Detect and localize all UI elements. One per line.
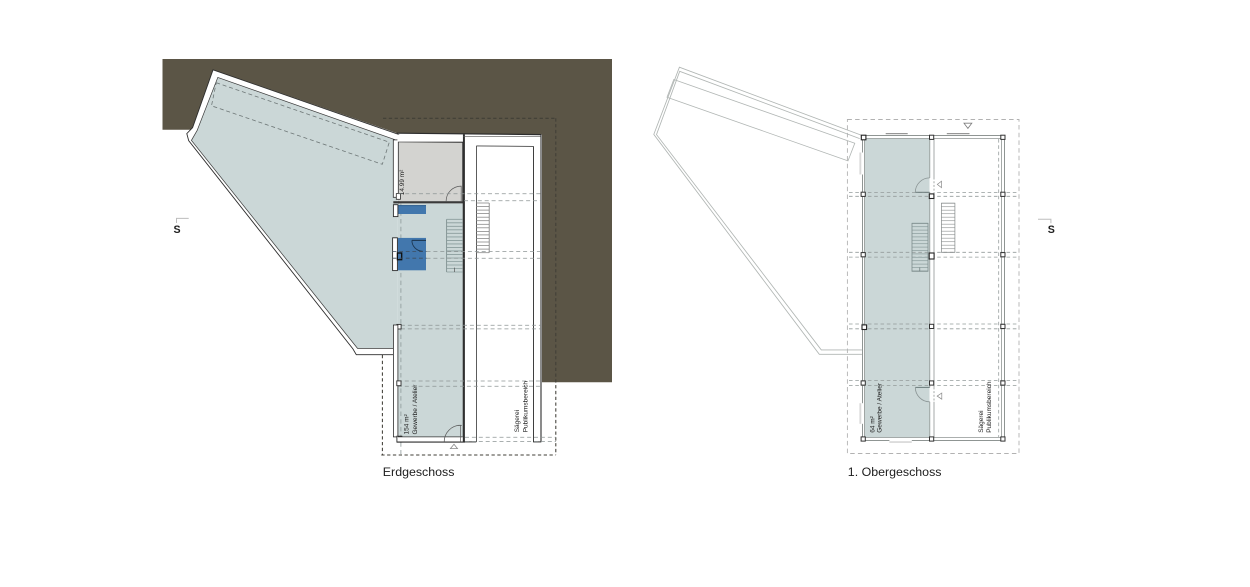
svg-text:Sägerei: Sägerei <box>978 410 985 432</box>
svg-text:Publikumsbereich: Publikumsbereich <box>986 381 993 433</box>
svg-text:Publikumsbereich: Publikumsbereich <box>522 381 529 433</box>
svg-text:Erdgeschoss: Erdgeschoss <box>383 465 455 479</box>
svg-text:14.99 m²: 14.99 m² <box>399 169 406 195</box>
svg-text:Gewerbe / Atelier: Gewerbe / Atelier <box>876 382 883 433</box>
svg-text:S: S <box>174 224 181 236</box>
svg-text:64 m²: 64 m² <box>869 415 876 432</box>
svg-text:154 m²: 154 m² <box>403 413 410 434</box>
svg-text:Gewerbe / Atelier: Gewerbe / Atelier <box>412 384 419 435</box>
svg-text:1. Obergeschoss: 1. Obergeschoss <box>848 465 942 479</box>
svg-text:S: S <box>1048 224 1055 236</box>
svg-text:Sägerei: Sägerei <box>514 410 521 432</box>
